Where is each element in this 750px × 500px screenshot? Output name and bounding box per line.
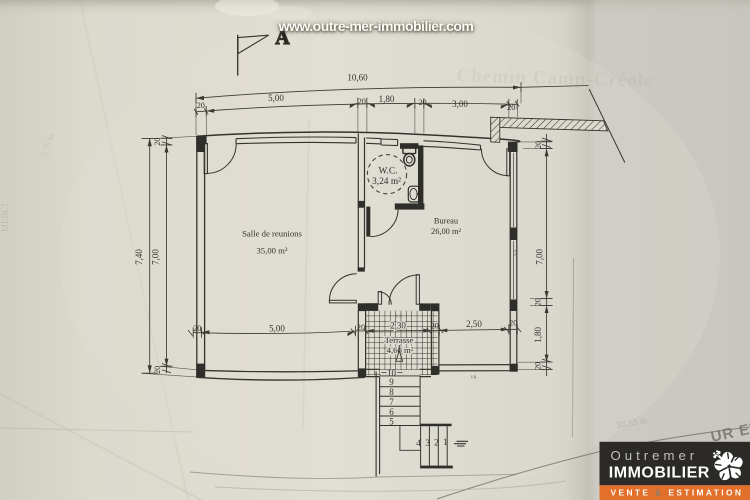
svg-text:Terrasse: Terrasse [385,335,414,345]
svg-text:2: 2 [434,438,439,448]
svg-text:4: 4 [416,439,421,449]
svg-text:5,00: 5,00 [269,323,285,333]
svg-text:10,60: 10,60 [347,73,368,83]
svg-text:3: 3 [425,439,430,449]
svg-text:9: 9 [389,377,394,387]
svg-text:8: 8 [389,387,394,397]
svg-text:20: 20 [418,98,426,107]
svg-text:20: 20 [509,318,517,327]
svg-text:1,80: 1,80 [533,327,543,343]
svg-text:20: 20 [193,324,201,333]
svg-text:20: 20 [153,366,162,374]
svg-text:20: 20 [534,298,543,306]
svg-text:V.R: V.R [470,374,477,379]
svg-text:26,00 m²: 26,00 m² [431,227,461,236]
svg-text:3,00: 3,00 [452,99,468,109]
svg-text:W.C.: W.C. [379,167,398,177]
svg-text:1,80: 1,80 [379,94,395,104]
svg-text:20: 20 [358,97,366,106]
svg-text:2,50: 2,50 [466,319,482,329]
svg-text:7,40: 7,40 [134,249,144,265]
svg-text:7: 7 [389,397,394,407]
svg-text:20: 20 [534,362,543,370]
svg-text:1: 1 [443,438,448,448]
svg-text:7,00: 7,00 [535,249,545,265]
svg-text:35,00 m²: 35,00 m² [256,246,287,256]
svg-text:V A: V A [395,314,402,319]
svg-text:20: 20 [534,141,543,149]
svg-text:20: 20 [153,138,162,146]
svg-text:5: 5 [389,417,394,427]
svg-text:20: 20 [357,323,365,332]
svg-text:6: 6 [389,407,394,417]
svg-text:VENTE & ESTIMATION: VENTE & ESTIMATION [611,488,744,498]
svg-text:www.outre-mer-immobilier.com: www.outre-mer-immobilier.com [278,18,474,34]
svg-text:Salle de reunions: Salle de reunions [242,229,302,239]
svg-text:Bureau: Bureau [434,217,459,226]
svg-text:Outremer: Outremer [611,448,699,463]
svg-text:5,00: 5,00 [268,93,284,103]
svg-text:20: 20 [507,103,515,112]
svg-text:20: 20 [431,322,439,331]
svg-text:IMMOBILIER: IMMOBILIER [609,465,710,482]
svg-text:3,24 m²: 3,24 m² [372,177,401,187]
svg-text:20: 20 [197,101,205,110]
svg-text:V.A: V.A [512,250,517,257]
svg-text:MERCI: MERCI [0,203,10,232]
svg-text:2,30: 2,30 [390,320,406,330]
svg-text:7,00: 7,00 [151,249,161,265]
